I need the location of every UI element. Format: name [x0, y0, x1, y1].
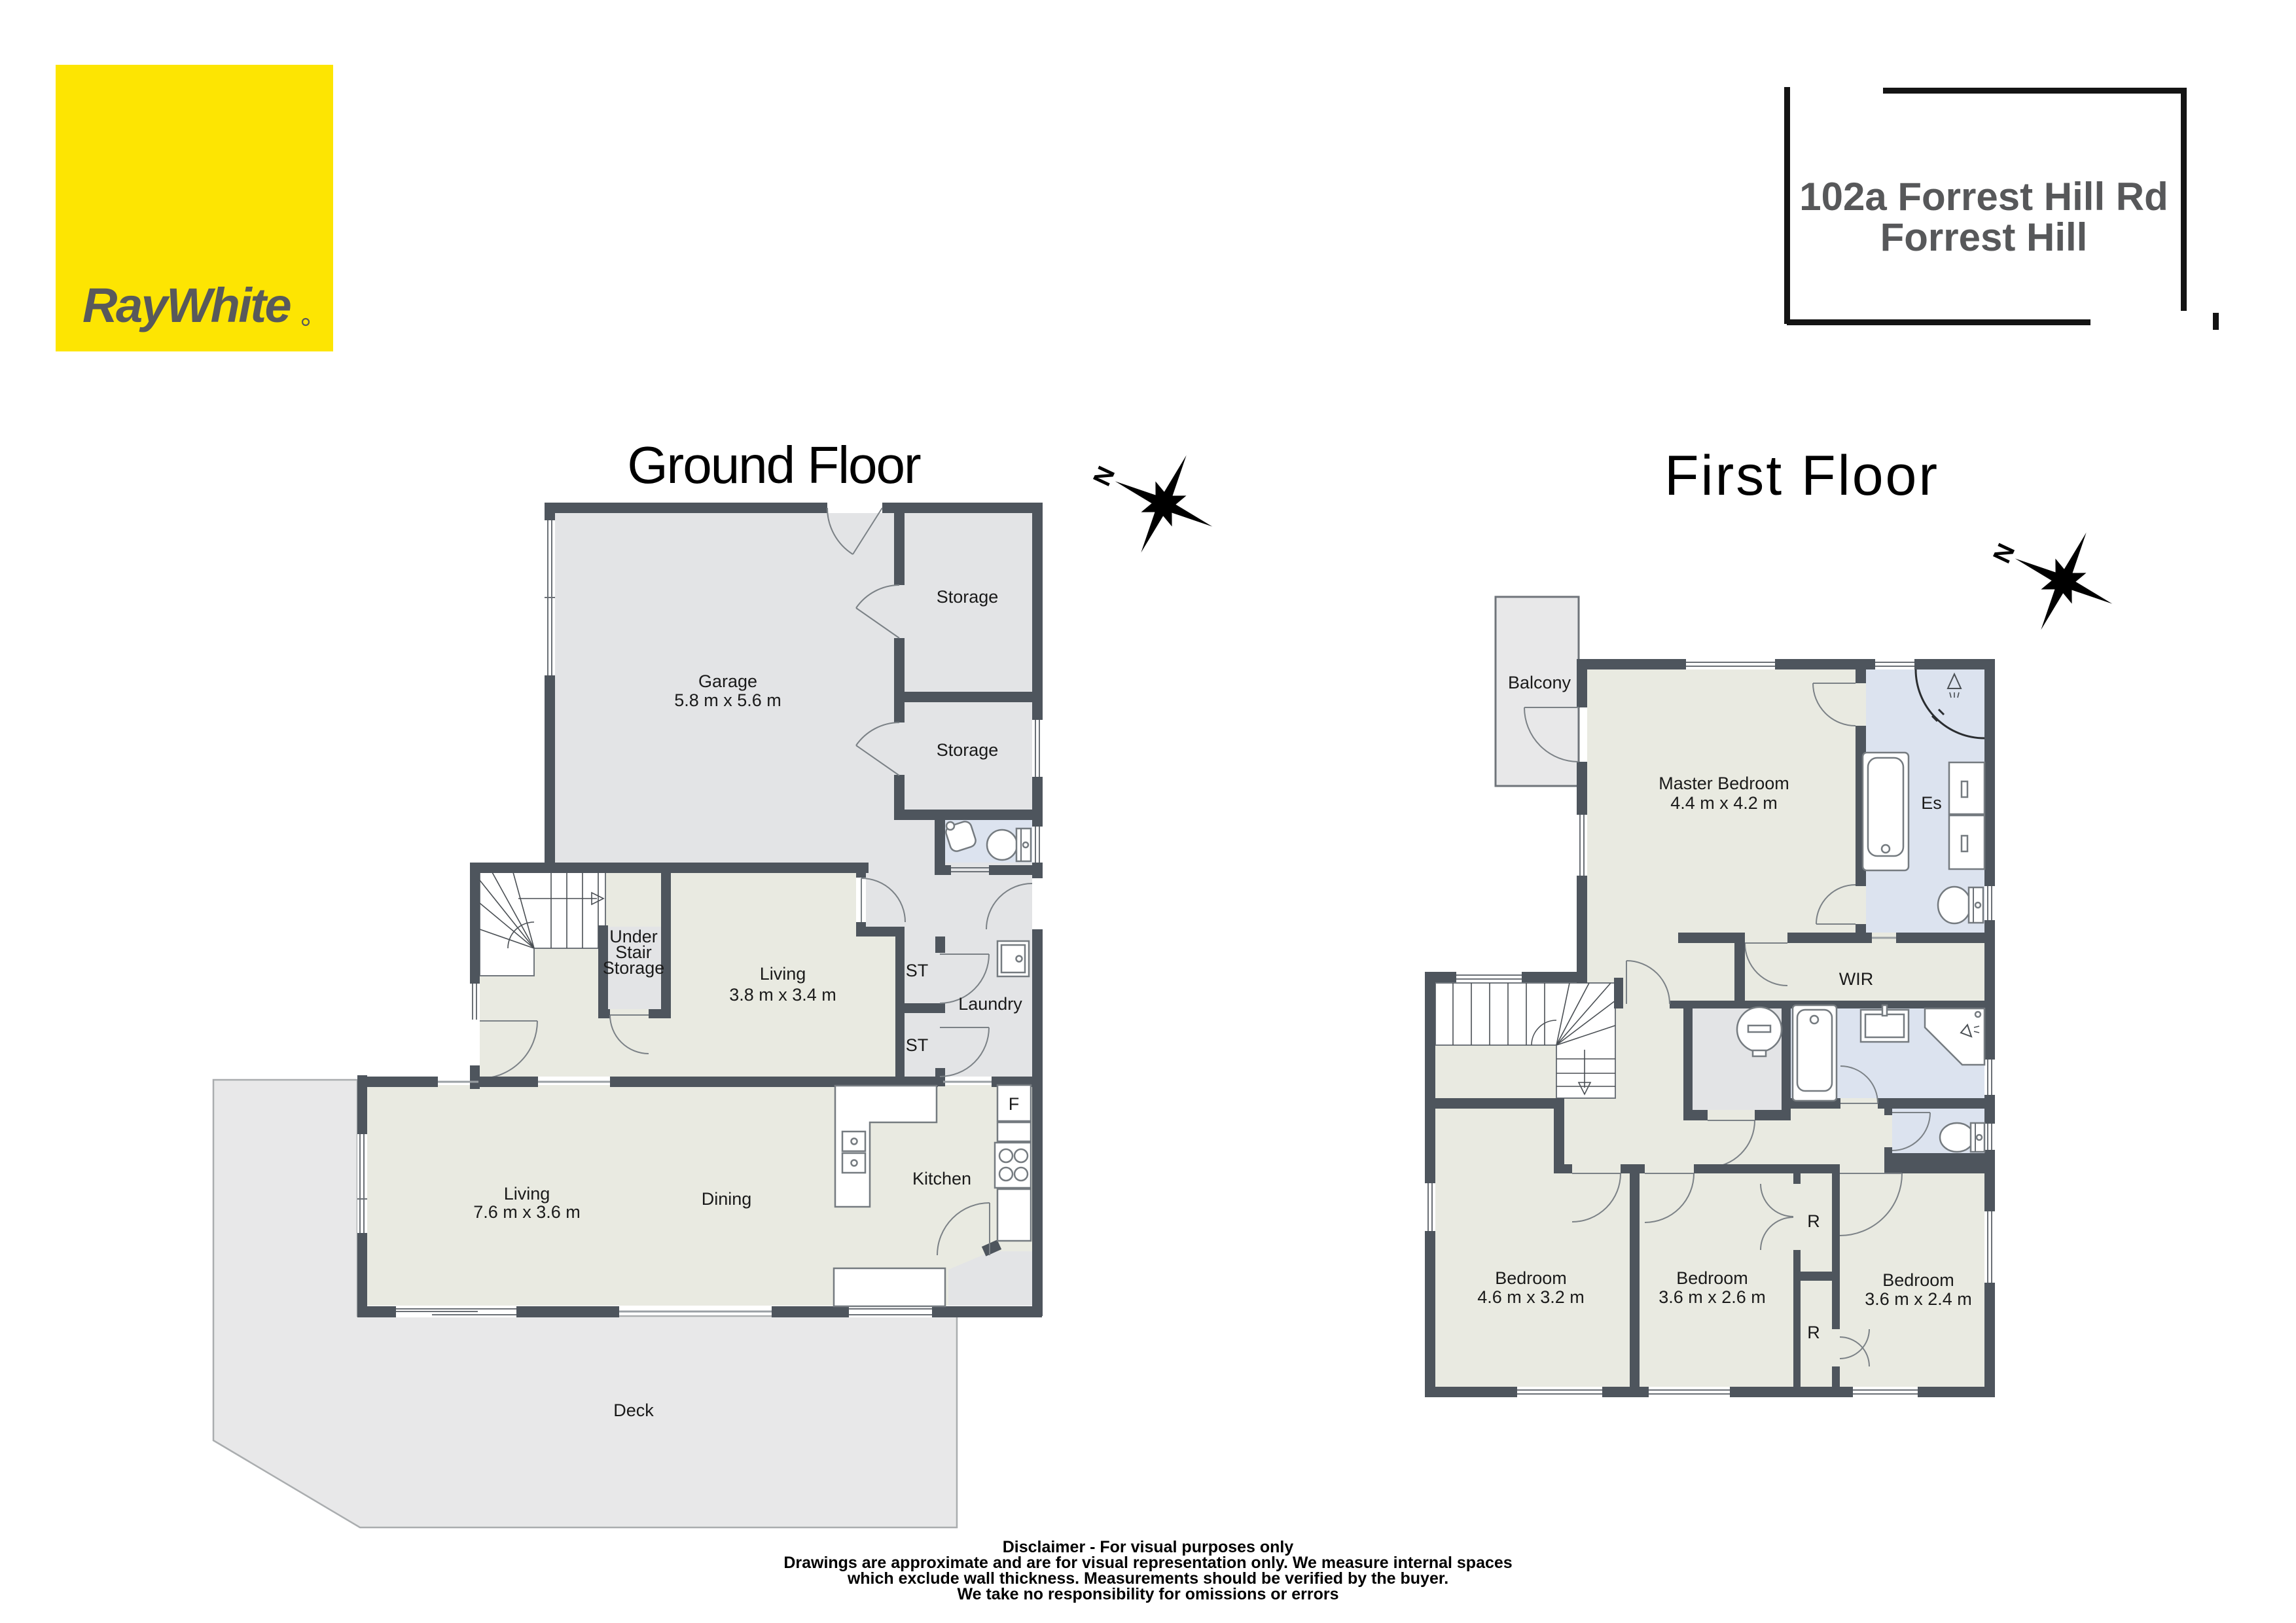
svg-text:Laundry: Laundry — [958, 994, 1022, 1014]
svg-text:Bedroom: Bedroom — [1676, 1268, 1748, 1288]
svg-text:4.4 m x 4.2 m: 4.4 m x 4.2 m — [1670, 793, 1778, 813]
svg-text:R: R — [1807, 1211, 1820, 1231]
svg-text:Ground Floor: Ground Floor — [627, 436, 921, 494]
svg-text:5.8 m x 5.6 m: 5.8 m x 5.6 m — [674, 690, 781, 710]
svg-text:We take no responsibility for: We take no responsibility for omissions … — [957, 1585, 1338, 1603]
svg-text:Storage: Storage — [937, 587, 999, 607]
svg-text:ST: ST — [906, 961, 929, 980]
svg-text:Bedroom: Bedroom — [1882, 1270, 1954, 1290]
svg-text:Kitchen: Kitchen — [912, 1169, 971, 1188]
svg-text:Forrest Hill: Forrest Hill — [1880, 215, 2088, 259]
svg-text:102a Forrest Hill Rd: 102a Forrest Hill Rd — [1799, 175, 2168, 219]
svg-text:Balcony: Balcony — [1508, 673, 1571, 692]
svg-text:Master Bedroom: Master Bedroom — [1659, 774, 1789, 793]
svg-text:Dining: Dining — [702, 1189, 752, 1209]
svg-text:3.8 m x 3.4 m: 3.8 m x 3.4 m — [729, 985, 836, 1005]
svg-text:RayWhite: RayWhite — [82, 278, 291, 332]
svg-text:Bedroom: Bedroom — [1495, 1268, 1567, 1288]
svg-text:Living: Living — [760, 964, 806, 984]
svg-text:4.6 m x 3.2 m: 4.6 m x 3.2 m — [1477, 1287, 1585, 1307]
svg-text:7.6 m x 3.6 m: 7.6 m x 3.6 m — [473, 1202, 581, 1222]
svg-text:R: R — [1807, 1323, 1820, 1342]
svg-text:F: F — [1009, 1094, 1020, 1114]
svg-text:ST: ST — [906, 1035, 929, 1055]
svg-text:3.6 m x 2.4 m: 3.6 m x 2.4 m — [1865, 1289, 1972, 1309]
svg-text:Deck: Deck — [613, 1400, 654, 1420]
svg-text:Storage: Storage — [603, 958, 665, 978]
svg-text:First Floor: First Floor — [1664, 444, 1939, 507]
svg-text:Storage: Storage — [937, 740, 999, 760]
svg-text:3.6 m x 2.6 m: 3.6 m x 2.6 m — [1659, 1287, 1766, 1307]
svg-text:Es: Es — [1921, 793, 1942, 813]
svg-text:Living: Living — [504, 1184, 550, 1204]
svg-text:WIR: WIR — [1839, 969, 1873, 989]
svg-text:Garage: Garage — [698, 671, 757, 691]
